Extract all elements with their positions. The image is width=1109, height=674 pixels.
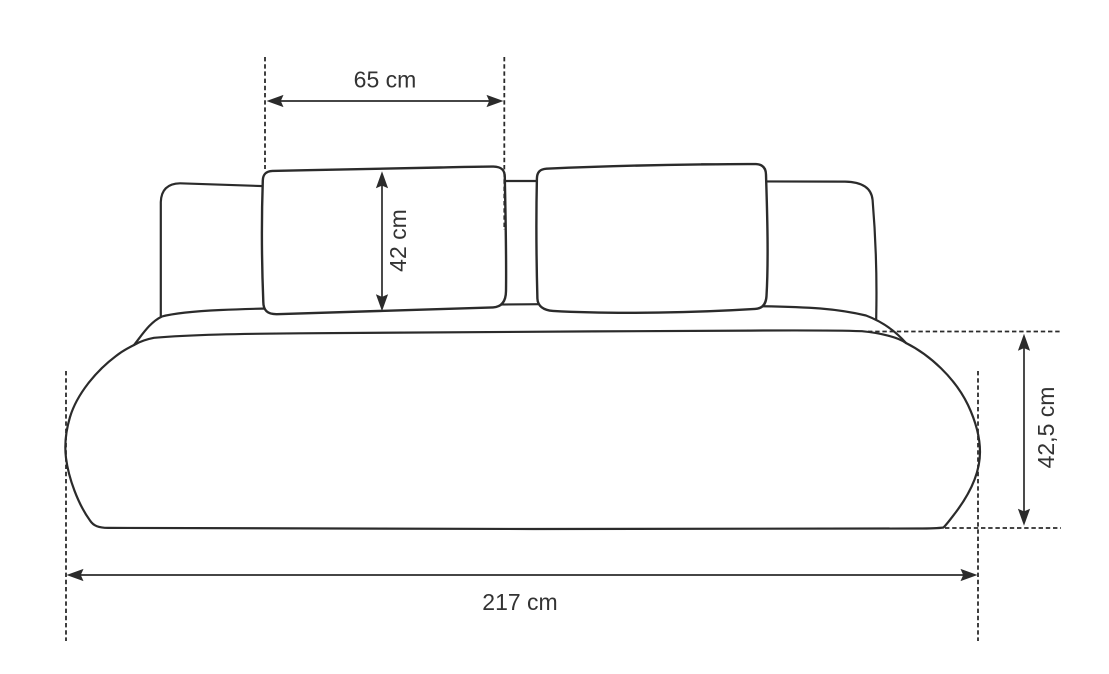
svg-text:42,5 cm: 42,5 cm bbox=[1033, 387, 1059, 469]
svg-text:42 cm: 42 cm bbox=[385, 209, 411, 272]
svg-text:217 cm: 217 cm bbox=[482, 589, 557, 615]
svg-text:65 cm: 65 cm bbox=[354, 67, 417, 93]
